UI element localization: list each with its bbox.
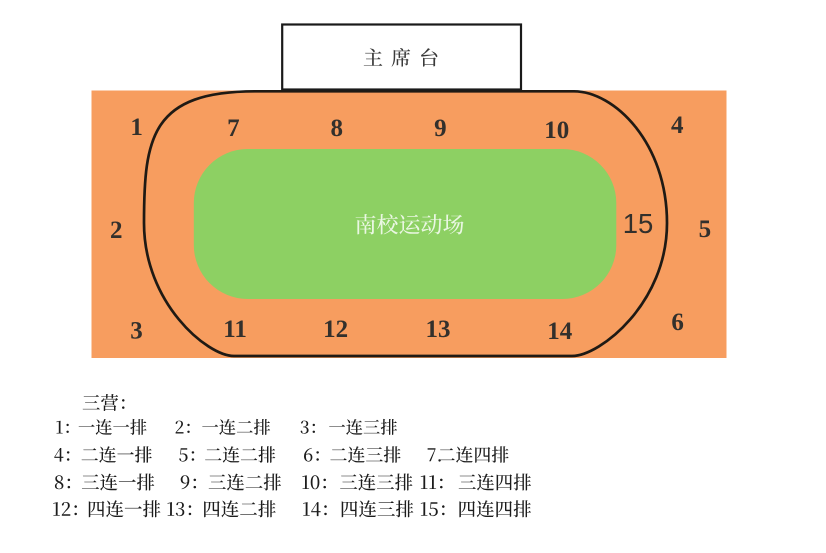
svg-text:13: 13 — [426, 316, 451, 343]
svg-text:1: 1 — [130, 114, 143, 141]
svg-text:7: 7 — [227, 115, 240, 142]
svg-text:4: 4 — [671, 112, 684, 139]
svg-text:11: 11 — [223, 316, 247, 343]
svg-text:6: 6 — [671, 309, 684, 336]
svg-text:14: 14 — [547, 318, 573, 345]
svg-text:10: 10 — [544, 117, 569, 144]
svg-text:9: 9 — [434, 115, 447, 142]
svg-text:15: 15 — [623, 208, 654, 239]
svg-text:3: 3 — [130, 318, 143, 345]
svg-text:2: 2 — [110, 217, 123, 244]
svg-text:5: 5 — [699, 216, 712, 243]
svg-text:12: 12 — [323, 316, 348, 343]
svg-text:8: 8 — [331, 115, 344, 142]
